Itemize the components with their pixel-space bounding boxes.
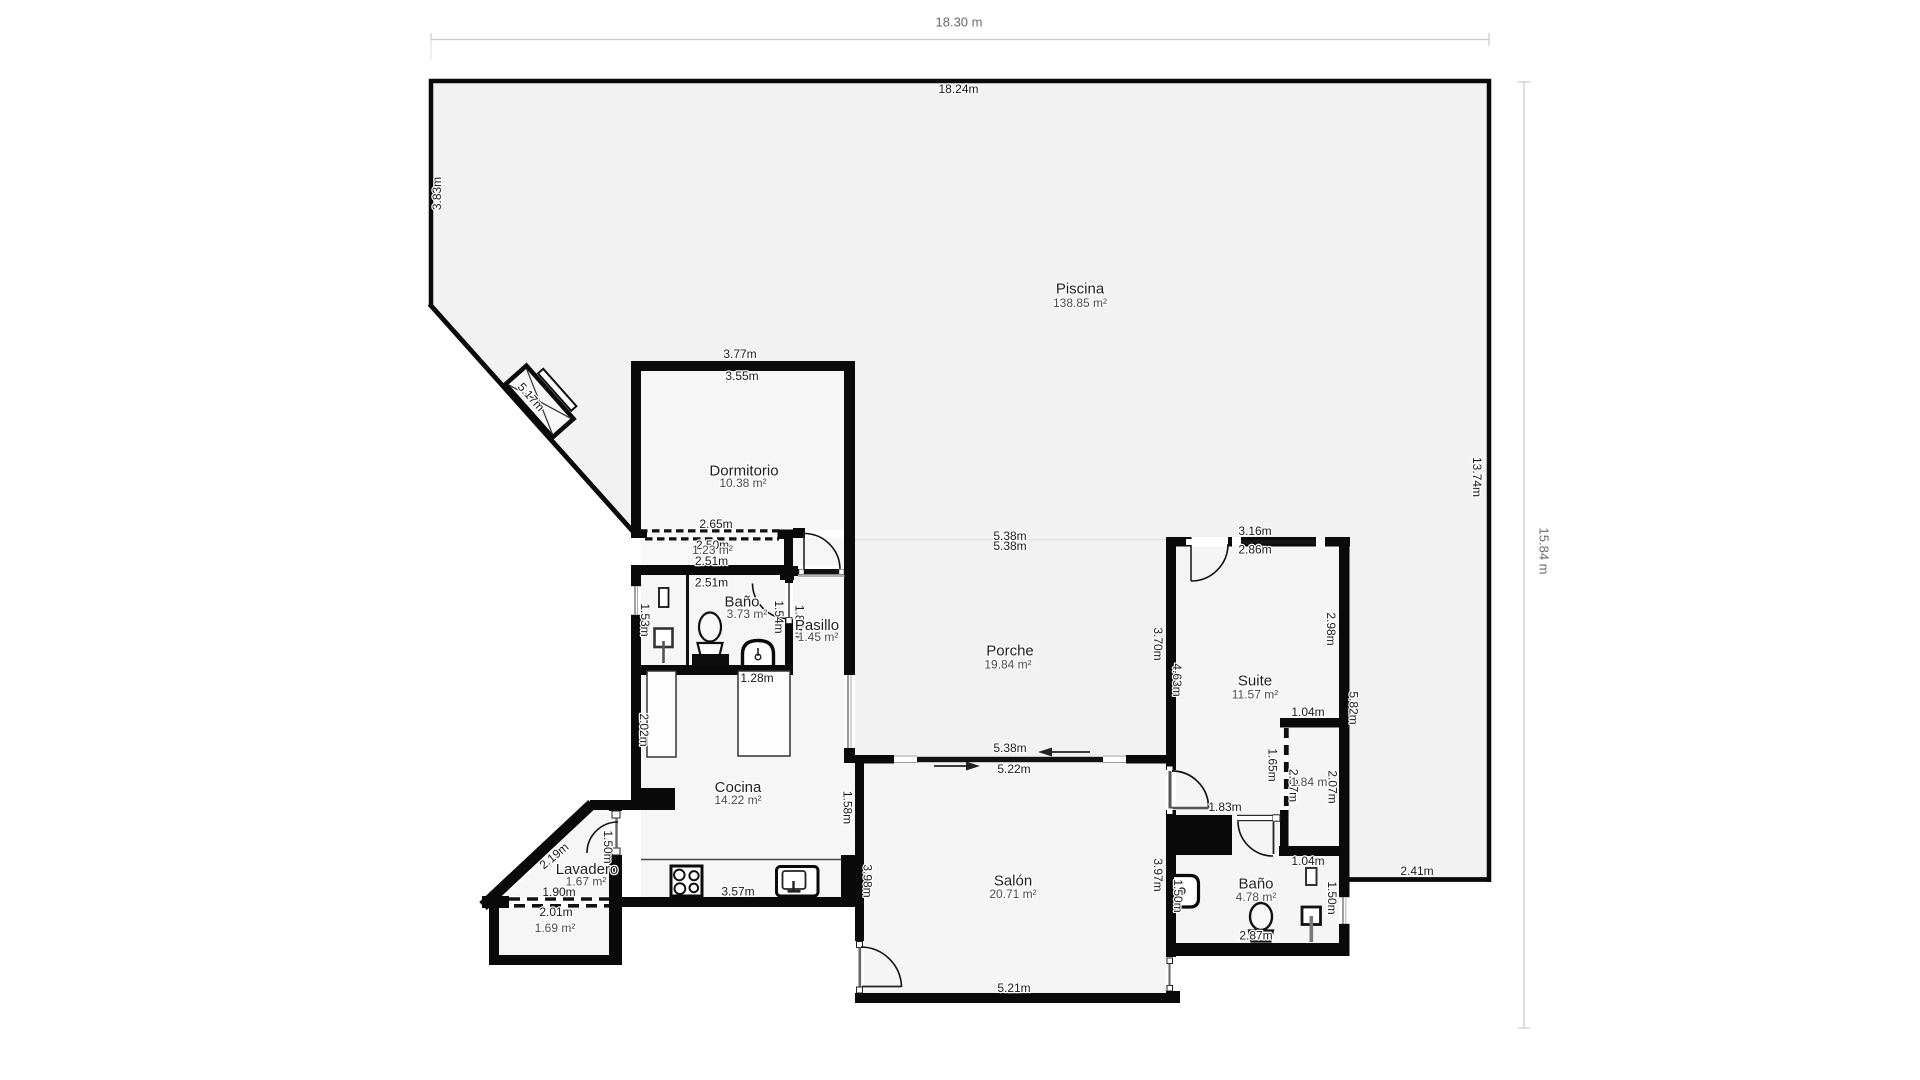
svg-text:5.21m: 5.21m bbox=[997, 981, 1030, 995]
svg-text:2.41m: 2.41m bbox=[1400, 864, 1433, 878]
svg-text:2.98m: 2.98m bbox=[1324, 612, 1338, 645]
svg-text:1.53m: 1.53m bbox=[638, 603, 652, 636]
svg-text:3.97m: 3.97m bbox=[1151, 858, 1165, 891]
svg-text:10.38 m²: 10.38 m² bbox=[719, 476, 766, 490]
svg-text:3.57m: 3.57m bbox=[721, 885, 754, 899]
svg-text:18.30 m: 18.30 m bbox=[936, 15, 983, 30]
svg-text:1.90m: 1.90m bbox=[542, 885, 575, 899]
svg-text:3.83m: 3.83m bbox=[430, 177, 444, 210]
svg-text:1.50m: 1.50m bbox=[1171, 879, 1185, 912]
svg-text:11.57 m²: 11.57 m² bbox=[1232, 688, 1278, 702]
svg-text:1.50m: 1.50m bbox=[1325, 881, 1339, 914]
svg-text:2.87m: 2.87m bbox=[1239, 929, 1272, 943]
svg-text:14.22 m²: 14.22 m² bbox=[714, 793, 761, 807]
svg-text:19.84 m²: 19.84 m² bbox=[984, 658, 1031, 672]
svg-text:1.65m: 1.65m bbox=[1266, 748, 1280, 781]
svg-text:4.78 m²: 4.78 m² bbox=[1236, 890, 1277, 904]
svg-text:5.38m: 5.38m bbox=[993, 741, 1026, 755]
svg-text:1.04m: 1.04m bbox=[1291, 854, 1324, 868]
svg-text:5.38m: 5.38m bbox=[993, 539, 1026, 553]
svg-text:3.77m: 3.77m bbox=[723, 347, 756, 361]
svg-text:5.82m: 5.82m bbox=[1347, 691, 1361, 724]
svg-text:3.73 m²: 3.73 m² bbox=[727, 607, 768, 621]
svg-text:2.65m: 2.65m bbox=[699, 517, 732, 531]
svg-text:3.16m: 3.16m bbox=[1238, 524, 1271, 538]
svg-text:2.02m: 2.02m bbox=[637, 713, 651, 746]
svg-text:1.69 m²: 1.69 m² bbox=[535, 921, 576, 935]
svg-text:2.01m: 2.01m bbox=[539, 905, 572, 919]
svg-text:138.85 m²: 138.85 m² bbox=[1053, 296, 1107, 310]
svg-text:2.51m: 2.51m bbox=[695, 554, 728, 568]
svg-text:1.50m: 1.50m bbox=[601, 830, 615, 863]
svg-text:15.84 m: 15.84 m bbox=[1537, 528, 1552, 575]
svg-text:1.58m: 1.58m bbox=[841, 791, 855, 824]
svg-text:20.71 m²: 20.71 m² bbox=[989, 887, 1036, 901]
svg-text:1.45 m²: 1.45 m² bbox=[798, 630, 839, 644]
svg-text:5.22m: 5.22m bbox=[997, 762, 1030, 776]
svg-text:2.07m: 2.07m bbox=[1326, 770, 1340, 803]
svg-text:3.70m: 3.70m bbox=[1151, 627, 1165, 660]
svg-text:3.98m: 3.98m bbox=[861, 864, 875, 897]
svg-text:1.54m: 1.54m bbox=[772, 600, 786, 633]
svg-text:13.74m: 13.74m bbox=[1470, 457, 1484, 497]
svg-text:1.83m: 1.83m bbox=[1208, 800, 1241, 814]
svg-text:18.24m: 18.24m bbox=[938, 82, 978, 96]
svg-text:1.84 m²: 1.84 m² bbox=[1291, 775, 1332, 789]
svg-text:3.55m: 3.55m bbox=[725, 369, 758, 383]
svg-text:4.63m: 4.63m bbox=[1170, 663, 1184, 696]
svg-text:2.51m: 2.51m bbox=[695, 576, 728, 590]
svg-text:1.28m: 1.28m bbox=[740, 671, 773, 685]
svg-text:Piscina: Piscina bbox=[1056, 281, 1105, 298]
svg-text:1.04m: 1.04m bbox=[1291, 705, 1324, 719]
svg-text:2.86m: 2.86m bbox=[1238, 543, 1271, 557]
